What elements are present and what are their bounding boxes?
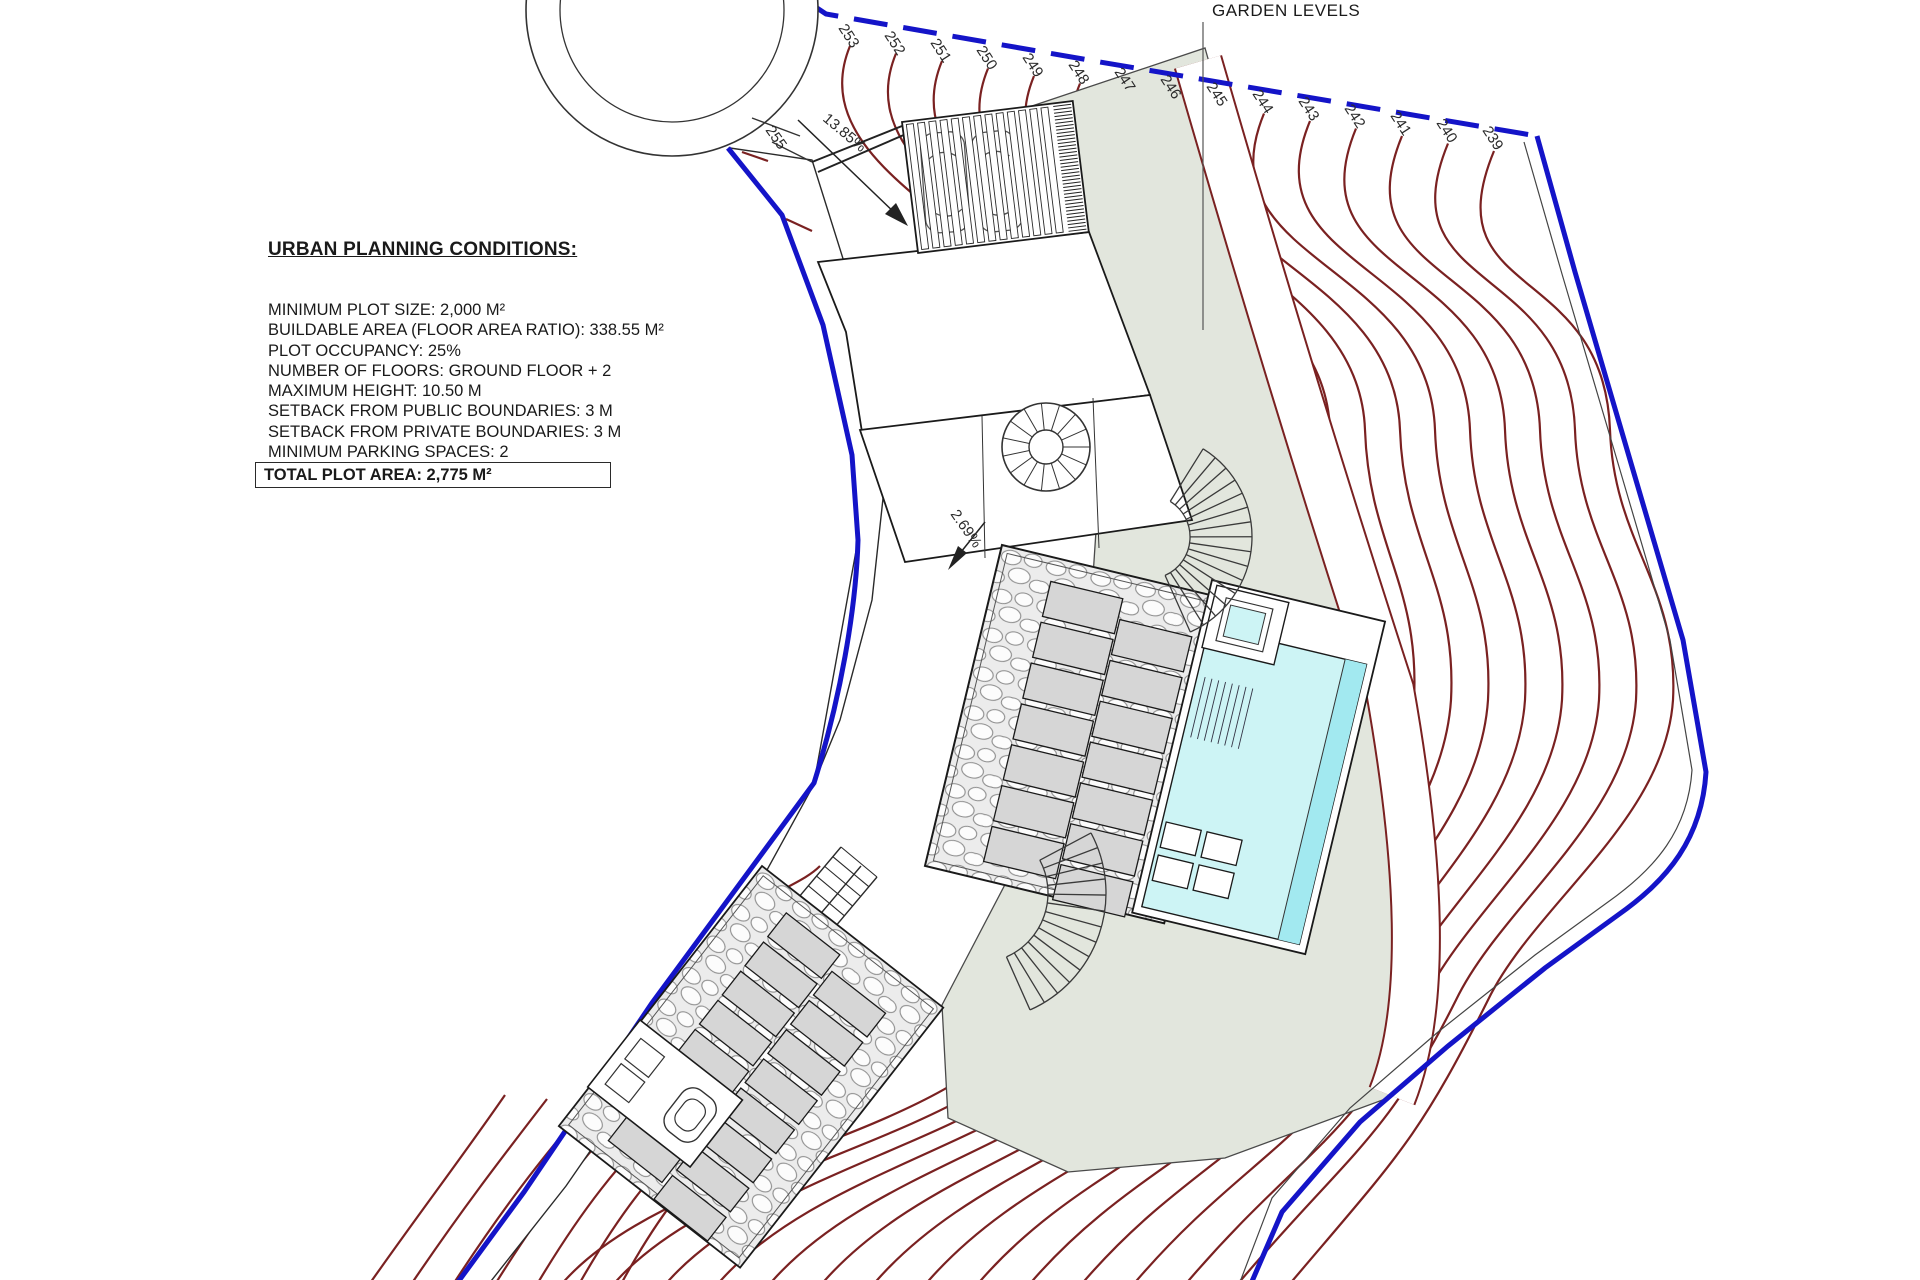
total-plot-area-box: TOTAL PLOT AREA: 2,775 M² [255,462,611,488]
planning-heading: URBAN PLANNING CONDITIONS: [268,238,748,262]
contour-elevation-label: 250 [973,43,1001,73]
condition-line: MAXIMUM HEIGHT: 10.50 M [268,381,748,401]
contour-elevation-label: 249 [1019,50,1047,80]
contour-elevation-label: 253 [835,21,863,51]
garden-levels-label: GARDEN LEVELS [1212,1,1360,20]
contour-elevation-label: 248 [1065,57,1093,87]
contour-elevation-label: 251 [927,36,955,66]
contour-elevation-label: 252 [881,28,909,58]
stair-tread [833,857,869,887]
stair-tread [817,876,853,906]
condition-line: SETBACK FROM PRIVATE BOUNDARIES: 3 M [268,422,748,442]
spiral-staircase [1002,403,1090,491]
stair-tread [841,847,877,877]
condition-line: PLOT OCCUPANCY: 25% [268,341,748,361]
site-plan-sheet: 13.85% 2.69% 255 GARDEN LEVELS 253252251… [0,0,1920,1280]
condition-line: MINIMUM PARKING SPACES: 2 [268,442,748,462]
carport [902,101,1089,253]
condition-line: MINIMUM PLOT SIZE: 2,000 M² [268,300,748,320]
condition-line: SETBACK FROM PUBLIC BOUNDARIES: 3 M [268,401,748,421]
stair-tread [825,866,861,896]
urban-planning-conditions-block: URBAN PLANNING CONDITIONS: MINIMUM PLOT … [268,238,748,462]
condition-line: NUMBER OF FLOORS: GROUND FLOOR + 2 [268,361,748,381]
condition-line: BUILDABLE AREA (FLOOR AREA RATIO): 338.5… [268,320,748,340]
site-plan-drawing: 13.85% 2.69% 255 GARDEN LEVELS 253252251… [0,0,1920,1280]
